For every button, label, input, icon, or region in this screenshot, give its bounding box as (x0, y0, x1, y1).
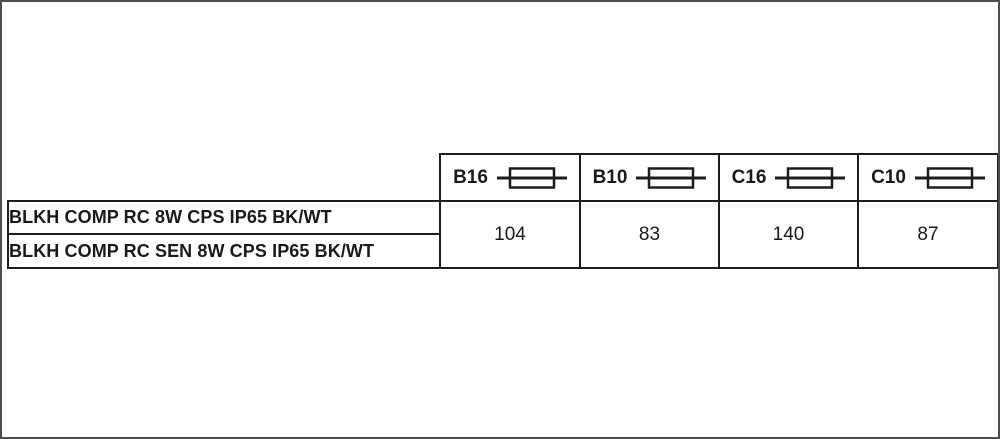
column-header-c10: C10 (858, 154, 998, 201)
rating-value-c10: 87 (858, 201, 998, 268)
rating-value-c16: 140 (719, 201, 858, 268)
fuse-icon (636, 165, 706, 191)
column-header-label: B10 (593, 167, 628, 189)
column-header-b16: B16 (440, 154, 580, 201)
column-header-c16: C16 (719, 154, 858, 201)
column-header-label: C16 (732, 167, 767, 189)
column-header-label: B16 (453, 167, 488, 189)
product-name-row: BLKH COMP RC 8W CPS IP65 BK/WT (8, 201, 440, 234)
product-name-row: BLKH COMP RC SEN 8W CPS IP65 BK/WT (8, 234, 440, 268)
corner-spacer (8, 154, 440, 201)
breaker-rating-table: B16 B10 C16 (7, 153, 999, 269)
column-header-label: C10 (871, 167, 906, 189)
column-header-b10: B10 (580, 154, 719, 201)
page-canvas: B16 B10 C16 (0, 0, 1000, 439)
rating-value-b16: 104 (440, 201, 580, 268)
rating-value-b10: 83 (580, 201, 719, 268)
fuse-icon (497, 165, 567, 191)
fuse-icon (915, 165, 985, 191)
fuse-icon (775, 165, 845, 191)
